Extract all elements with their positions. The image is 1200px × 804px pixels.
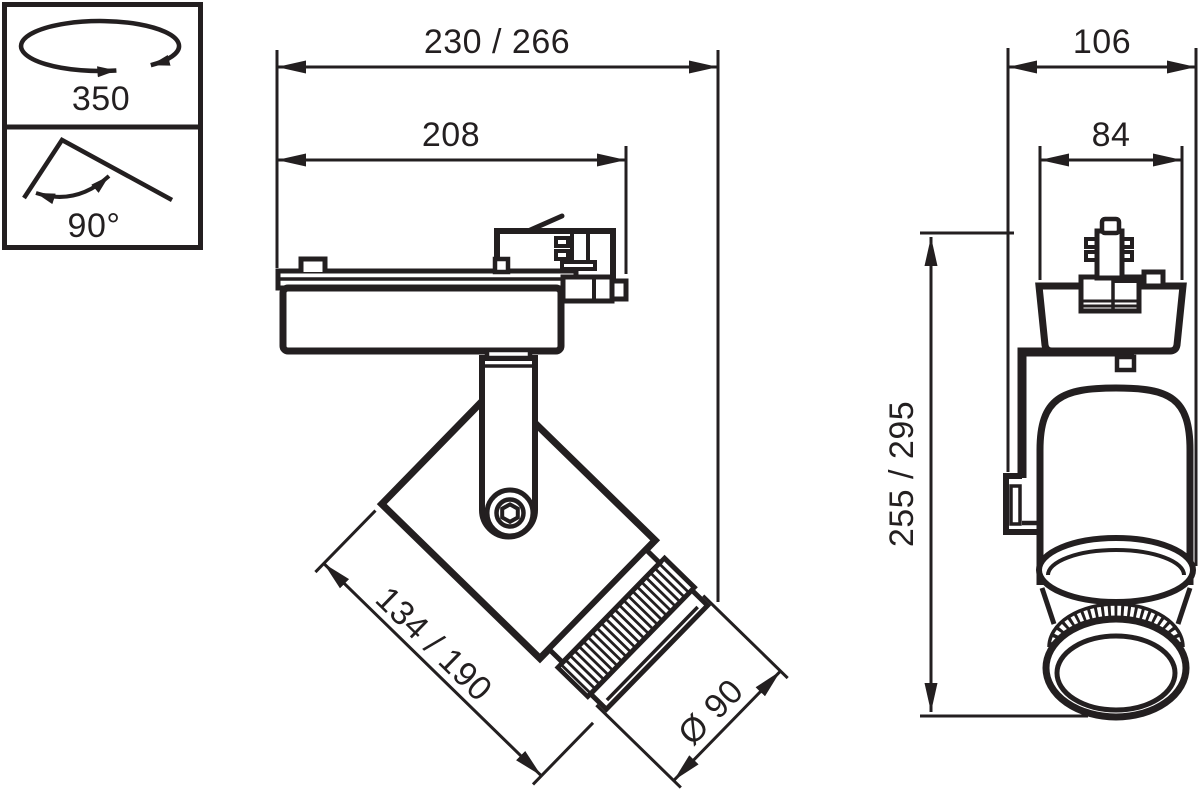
lens-front	[1057, 636, 1175, 710]
spot-head-side: 134 / 190 Ø 90	[315, 386, 791, 804]
tilt-angle-label: 90°	[68, 207, 121, 245]
gearbox-side	[278, 259, 626, 351]
dim-label-overall-height: 255 / 295	[883, 401, 921, 547]
dim-label-gear-width: 84	[1092, 116, 1131, 154]
lamp-body-front	[1039, 388, 1193, 624]
luminaire-dimension-drawing: 350 90°	[0, 0, 1200, 804]
pivot-screw	[487, 490, 533, 536]
track-adapter-front	[1081, 219, 1139, 311]
dimension-drawing-page: 350 90°	[0, 0, 1200, 804]
front-view: 106 84 255 / 295	[883, 23, 1196, 717]
dim-label-overall-depth: 106	[1073, 23, 1131, 61]
rotation-ellipse-icon	[21, 21, 179, 71]
side-view: 134 / 190 Ø 90 230 / 266	[277, 23, 792, 804]
rotation-symbol: 350	[21, 21, 179, 118]
tilt-arc-icon	[36, 176, 109, 197]
tilt-angle-icon	[24, 140, 172, 200]
legend-panel: 350 90°	[5, 5, 201, 248]
dim-label-gear-length: 208	[422, 116, 480, 154]
rotation-range-label: 350	[72, 80, 130, 118]
tilt-symbol: 90°	[24, 140, 172, 245]
dim-label-overall-length: 230 / 266	[424, 23, 570, 61]
